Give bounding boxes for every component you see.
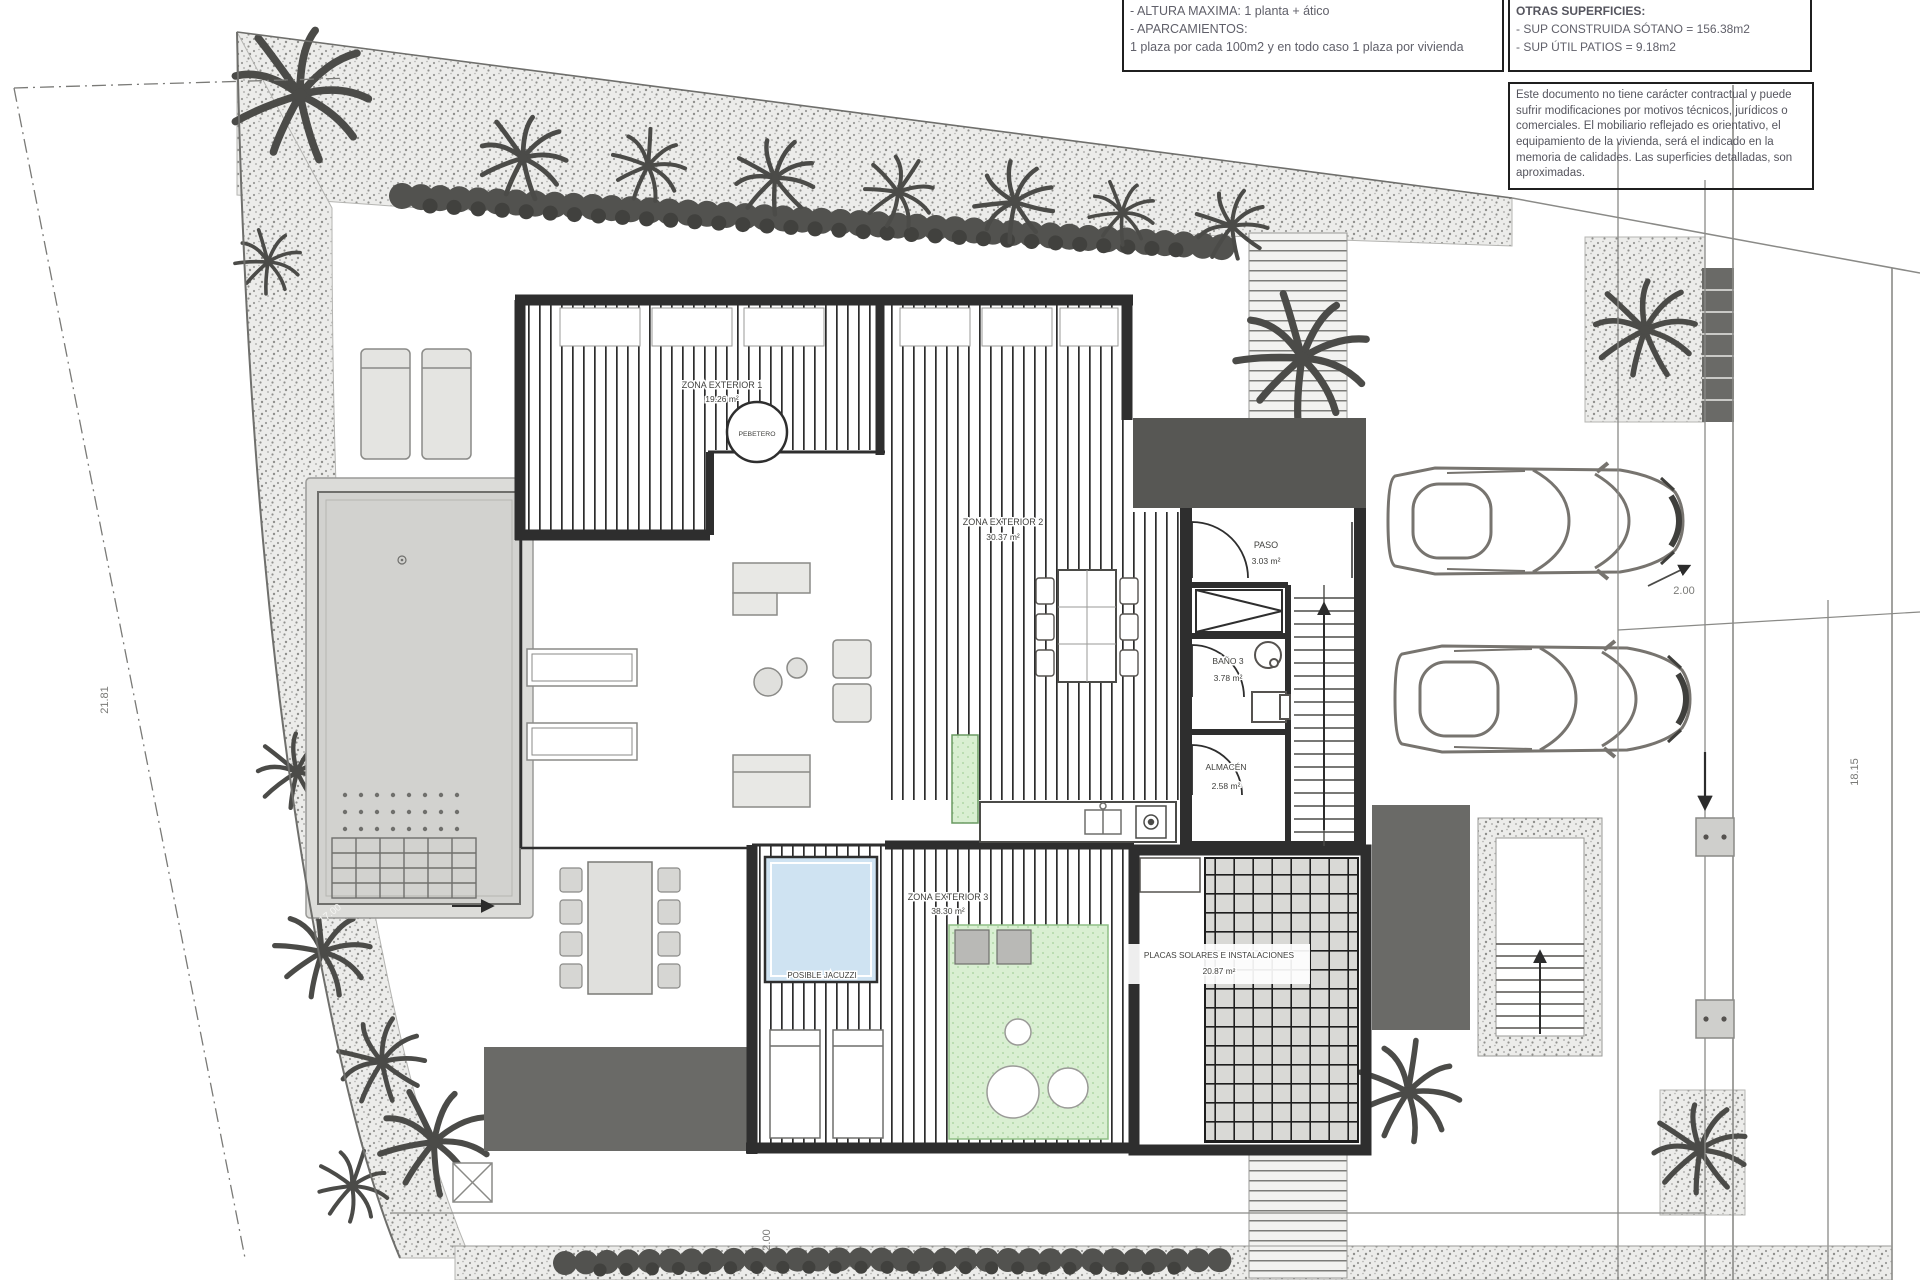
right-wing (1192, 522, 1358, 846)
deck-zona-exterior-2 (885, 305, 1180, 800)
car-1 (1388, 463, 1683, 579)
dimension-arrow-up (1648, 566, 1689, 586)
gates (1696, 818, 1734, 1038)
daybeds (527, 649, 637, 760)
room-label-zona-exterior-1: ZONA EXTERIOR 1 (682, 380, 763, 390)
room-area-zona-exterior-2: 30.37 m² (986, 532, 1020, 542)
pergola-slab (484, 1047, 747, 1151)
solar-panels (1205, 858, 1358, 1142)
jacuzzi (765, 857, 877, 982)
dimension-bottom: 2.00 (761, 1229, 773, 1250)
notes-box: - ALTURA MAXIMA: 1 planta + ático - APAR… (1122, 0, 1504, 72)
coffee-table (754, 668, 782, 696)
corner-marker (453, 1163, 492, 1202)
pool-marker-dot (401, 559, 404, 562)
surfaces-line: - SUP ÚTIL PATIOS = 9.18m2 (1516, 38, 1804, 56)
survey-horizontal-parking (1618, 612, 1920, 630)
planter-green (952, 735, 978, 823)
room-area-bano-3: 3.78 m² (1214, 673, 1243, 683)
outdoor-dining-table (560, 862, 680, 994)
room-label-placas: PLACAS SOLARES E INSTALACIONES (1144, 950, 1295, 960)
armchair (833, 684, 871, 722)
room-label-zona-exterior-2: ZONA EXTERIOR 2 (963, 517, 1044, 527)
solar-room-box (1140, 858, 1200, 892)
room-area-almacen: 2.58 m² (1212, 781, 1241, 791)
room-label-bano-3: BAÑO 3 (1212, 656, 1243, 666)
room-area-zona-exterior-1: 19.26 m² (705, 394, 739, 404)
disclaimer-box: Este documento no tiene carácter contrac… (1508, 82, 1814, 190)
room-label-almacen: ALMACÉN (1205, 762, 1246, 772)
gate-1 (1696, 818, 1734, 856)
notes-line: - ALTURA MAXIMA: 1 planta + ático (1130, 2, 1496, 20)
dimension-parking: 2.00 (1673, 585, 1694, 597)
kitchen-hob (1136, 806, 1166, 838)
room-label-zona-exterior-3: ZONA EXTERIOR 3 (908, 892, 989, 902)
walkway-bottom (1249, 1151, 1347, 1278)
notes-line: - APARCAMIENTOS: (1130, 20, 1496, 38)
floor-plan: ZONA EXTERIOR 1 19.26 m² PEBETERO ZONA E… (0, 0, 1920, 1280)
shower (1196, 590, 1282, 632)
armchair (833, 640, 871, 678)
dimension-left: 21.81 (99, 686, 111, 714)
boundary-diagonal-topright (1512, 198, 1920, 273)
disclaimer-text: Este documento no tiene carácter contrac… (1516, 89, 1792, 179)
exterior-stair-patio (1478, 818, 1602, 1056)
solar-room (1140, 858, 1358, 1142)
plan-drawing: ZONA EXTERIOR 1 19.26 m² PEBETERO ZONA E… (0, 0, 1920, 1280)
gate-2 (1696, 1000, 1734, 1038)
living-room (733, 563, 871, 807)
living-sofa (733, 563, 810, 593)
surfaces-line: - SUP CONSTRUIDA SÓTANO = 156.38m2 (1516, 20, 1804, 38)
side-slab (1372, 805, 1470, 1030)
survey-dashdot-left (14, 88, 245, 1258)
room-area-placas: 20.87 m² (1203, 966, 1236, 976)
hedge-bottom-row (565, 1259, 1235, 1263)
sun-loungers (361, 349, 471, 459)
living-sofa-2 (733, 755, 810, 807)
swimming-pool (306, 478, 533, 918)
coffee-table-small (787, 658, 807, 678)
surfaces-title: OTRAS SUPERFICIES: (1516, 2, 1804, 20)
bathroom-sink (1255, 642, 1281, 668)
porch-roof (1133, 418, 1366, 508)
parking (1388, 463, 1690, 757)
pebetero-label: PEBETERO (738, 431, 775, 438)
notes-line: 1 plaza por cada 100m2 y en todo caso 1 … (1130, 38, 1496, 56)
walkway-right-dark (1702, 268, 1734, 422)
living-sofa-chaise (733, 593, 777, 615)
exterior-dining-table (1036, 570, 1138, 682)
jacuzzi-label: POSIBLE JACUZZI (787, 971, 856, 980)
car-2 (1395, 641, 1690, 757)
toilet (1252, 692, 1290, 722)
room-label-paso: PASO (1254, 540, 1278, 550)
room-area-zona-exterior-3: 38.30 m² (931, 906, 965, 916)
surfaces-box: OTRAS SUPERFICIES: - SUP CONSTRUIDA SÓTA… (1508, 0, 1812, 72)
room-area-paso: 3.03 m² (1252, 556, 1281, 566)
dimension-right: 18.15 (1849, 758, 1861, 786)
